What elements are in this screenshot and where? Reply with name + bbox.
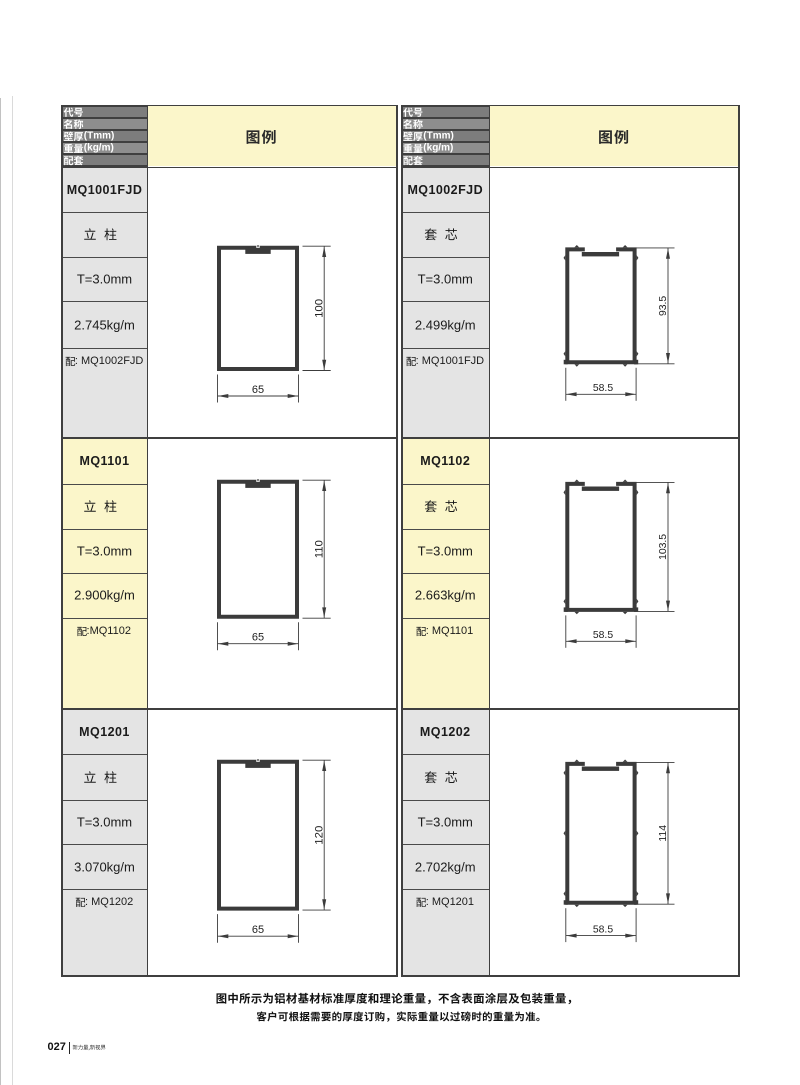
svg-text:110: 110: [313, 540, 325, 558]
svg-text:58.5: 58.5: [593, 630, 613, 641]
svg-text:114: 114: [658, 825, 669, 842]
svg-text:65: 65: [252, 924, 264, 936]
svg-text:65: 65: [252, 384, 264, 396]
svg-text:103.5: 103.5: [658, 534, 669, 560]
svg-text:93.5: 93.5: [658, 296, 669, 316]
svg-text:65: 65: [252, 632, 264, 644]
svg-text:120: 120: [313, 826, 325, 845]
svg-text:58.5: 58.5: [593, 924, 613, 935]
svg-text:100: 100: [313, 299, 325, 318]
svg-text:58.5: 58.5: [593, 383, 613, 394]
